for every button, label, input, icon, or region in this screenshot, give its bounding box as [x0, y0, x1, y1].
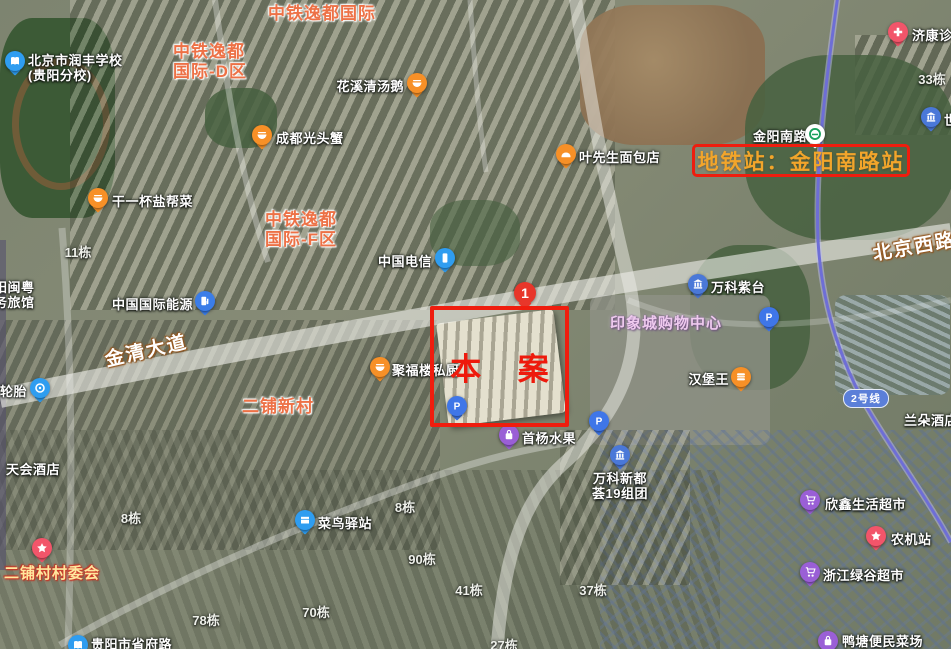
poi-label-shouyang-fruit[interactable]: 首杨水果: [522, 431, 576, 446]
text-label-yangminyue-inn: 阳闽粤务旅馆: [0, 280, 35, 311]
label-line: 印象城购物中心: [610, 315, 722, 332]
road-label-jinqing-avenue: 金清大道: [102, 327, 190, 372]
poi-label-burger-king[interactable]: 汉堡王: [688, 372, 729, 387]
poi-label-cainiao-station[interactable]: 菜鸟驿站: [318, 516, 372, 531]
poi-label-salt-cuisine[interactable]: 干一杯盐帮菜: [112, 194, 193, 209]
bag-icon[interactable]: [499, 425, 519, 445]
label-line: 菜鸟驿站: [318, 516, 372, 531]
label-line: 成都光头蟹: [276, 131, 344, 146]
label-line: 首杨水果: [522, 431, 576, 446]
restaurant-icon[interactable]: [88, 188, 108, 208]
building-icon[interactable]: [688, 274, 708, 294]
poi-label-nongji-station[interactable]: 农机站: [891, 532, 932, 547]
label-line: 阳闽粤: [0, 280, 35, 295]
label-line: 叶先生面包店: [579, 150, 660, 165]
label-line: 万科新都: [592, 471, 648, 486]
poi-label-ye-bakery[interactable]: 叶先生面包店: [579, 150, 660, 165]
building-number-label: 90栋: [408, 549, 435, 568]
area-label-yinxiang-mall: 印象城购物中心: [610, 315, 722, 332]
building-number-label: 33栋: [918, 69, 945, 88]
area-label-zhongtie-yidu-f: 中铁逸都国际-F区: [265, 210, 337, 249]
label-line: 中铁逸都国际: [268, 4, 376, 24]
road-label-beijing-west-road: 北京西路: [870, 225, 951, 266]
label-line: 世: [944, 113, 951, 128]
tire-icon[interactable]: [30, 378, 50, 398]
label-line: 天会酒店: [6, 462, 60, 477]
building-number-label: 27栋: [490, 635, 517, 649]
label-line: 二铺新村: [242, 397, 314, 417]
poi-label-xinxin-supermarket[interactable]: 欣鑫生活超市: [825, 497, 906, 512]
building-number-label: 41栋: [455, 580, 482, 599]
poi-label-jikang-clinic[interactable]: 济康诊所: [912, 28, 951, 43]
label-line: 金阳南路: [753, 129, 807, 144]
area-label-zhongtie-yidu-d: 中铁逸都国际-D区: [173, 42, 247, 81]
poi-label-chengdu-crab[interactable]: 成都光头蟹: [276, 131, 344, 146]
label-line: 中铁逸都: [265, 210, 337, 230]
building-icon[interactable]: [610, 445, 630, 465]
label-line: 汉堡王: [688, 372, 729, 387]
svg-text:P: P: [596, 417, 603, 427]
site-number-label: 1: [521, 285, 529, 301]
poi-label-shi-partial[interactable]: 世: [944, 113, 951, 128]
burger-icon[interactable]: [731, 367, 751, 387]
label-line: 浙江绿谷超市: [823, 568, 904, 583]
label-line: 荟19组团: [592, 486, 648, 501]
building-number-label: 8栋: [121, 508, 141, 527]
poi-label-vanke-xinduhui[interactable]: 万科新都荟19组团: [592, 471, 648, 502]
building-number-label: 37栋: [579, 580, 606, 599]
label-line: 贵阳市省府路: [91, 637, 172, 649]
label-line: 花溪清汤鹅: [336, 79, 404, 94]
poi-label-china-intl-energy[interactable]: 中国国际能源: [112, 297, 193, 312]
label-line: 欣鑫生活超市: [825, 497, 906, 512]
poi-label-runfeng-school[interactable]: 北京市润丰学校(贵阳分校): [28, 53, 123, 84]
label-line: 鸭塘便民菜场: [842, 634, 923, 649]
cart-icon[interactable]: [800, 490, 820, 510]
phone-icon[interactable]: [435, 248, 455, 268]
school-icon[interactable]: [5, 51, 25, 71]
area-label-zhongtie-yidu-intl: 中铁逸都国际: [268, 4, 376, 24]
star-icon[interactable]: [32, 538, 52, 558]
label-line: 中国国际能源: [112, 297, 193, 312]
label-line: 务旅馆: [0, 295, 35, 310]
text-label-jinyang-south-road: 金阳南路: [753, 129, 807, 144]
poi-label-shengfulu-school[interactable]: 贵阳市省府路: [91, 637, 172, 649]
label-line: 二铺村村委会: [4, 565, 100, 583]
svg-text:P: P: [766, 313, 773, 323]
site-highlight-box: 本 案: [430, 306, 569, 427]
bread-icon[interactable]: [556, 144, 576, 164]
label-line: 中国电信: [378, 254, 432, 269]
label-line: 济康诊所: [912, 28, 951, 43]
metro-line-badge: 2号线: [843, 389, 889, 408]
poi-label-erpu-village-committee[interactable]: 二铺村村委会: [4, 565, 100, 583]
restaurant-icon[interactable]: [407, 73, 427, 93]
label-line: 北京市润丰学校: [28, 53, 123, 68]
building-number-label: 78栋: [192, 610, 219, 629]
label-line: 国际-D区: [173, 62, 247, 82]
poi-label-goose-soup[interactable]: 花溪清汤鹅: [336, 79, 404, 94]
label-line: 干一杯盐帮菜: [112, 194, 193, 209]
site-label: 本 案: [450, 344, 563, 389]
site-number-marker[interactable]: 1: [514, 282, 536, 304]
metro-icon[interactable]: [805, 124, 825, 144]
parking-icon[interactable]: P: [589, 411, 609, 431]
poi-label-yatang-market[interactable]: 鸭塘便民菜场: [842, 634, 923, 649]
building-number-label: 8栋: [395, 497, 415, 516]
poi-label-tire-shop[interactable]: 捷轮胎: [0, 384, 27, 399]
building-icon[interactable]: [921, 107, 941, 127]
label-line: 捷轮胎: [0, 384, 27, 399]
text-label-landuo-hotel: 兰朵酒店: [904, 413, 951, 428]
label-line: 兰朵酒店: [904, 413, 951, 428]
bag-icon[interactable]: [818, 631, 838, 649]
school-icon[interactable]: [68, 635, 88, 649]
restaurant-icon[interactable]: [370, 357, 390, 377]
poi-label-china-telecom[interactable]: 中国电信: [378, 254, 432, 269]
building-number-label: 11栋: [65, 242, 92, 261]
restaurant-icon[interactable]: [252, 125, 272, 145]
fuel-icon[interactable]: [195, 291, 215, 311]
area-label-erpu-xincun: 二铺新村: [242, 397, 314, 417]
text-label-tianhui-hotel: 天会酒店: [6, 462, 60, 477]
metro-station-label: 地铁站：金阳南路站: [698, 146, 905, 176]
poi-label-zhejiang-lvgu-supermarket[interactable]: 浙江绿谷超市: [823, 568, 904, 583]
metro-station-highlight-box: 地铁站：金阳南路站: [692, 144, 910, 177]
package-icon[interactable]: [295, 510, 315, 530]
star-icon[interactable]: [866, 526, 886, 546]
cross-icon[interactable]: [888, 22, 908, 42]
label-line: 中铁逸都: [173, 42, 247, 62]
satellite-map-canvas[interactable]: 中铁逸都国际中铁逸都国际-D区中铁逸都国际-F区二铺新村印象城购物中心11栋33…: [0, 0, 951, 649]
label-line: (贵阳分校): [28, 68, 123, 83]
building-number-label: 70栋: [302, 602, 329, 621]
parking-icon[interactable]: P: [759, 307, 779, 327]
label-line: 万科紫台: [711, 280, 765, 295]
label-line: 国际-F区: [265, 230, 337, 250]
label-line: 农机站: [891, 532, 932, 547]
poi-label-vanke-zitai[interactable]: 万科紫台: [711, 280, 765, 295]
cart-icon[interactable]: [800, 562, 820, 582]
